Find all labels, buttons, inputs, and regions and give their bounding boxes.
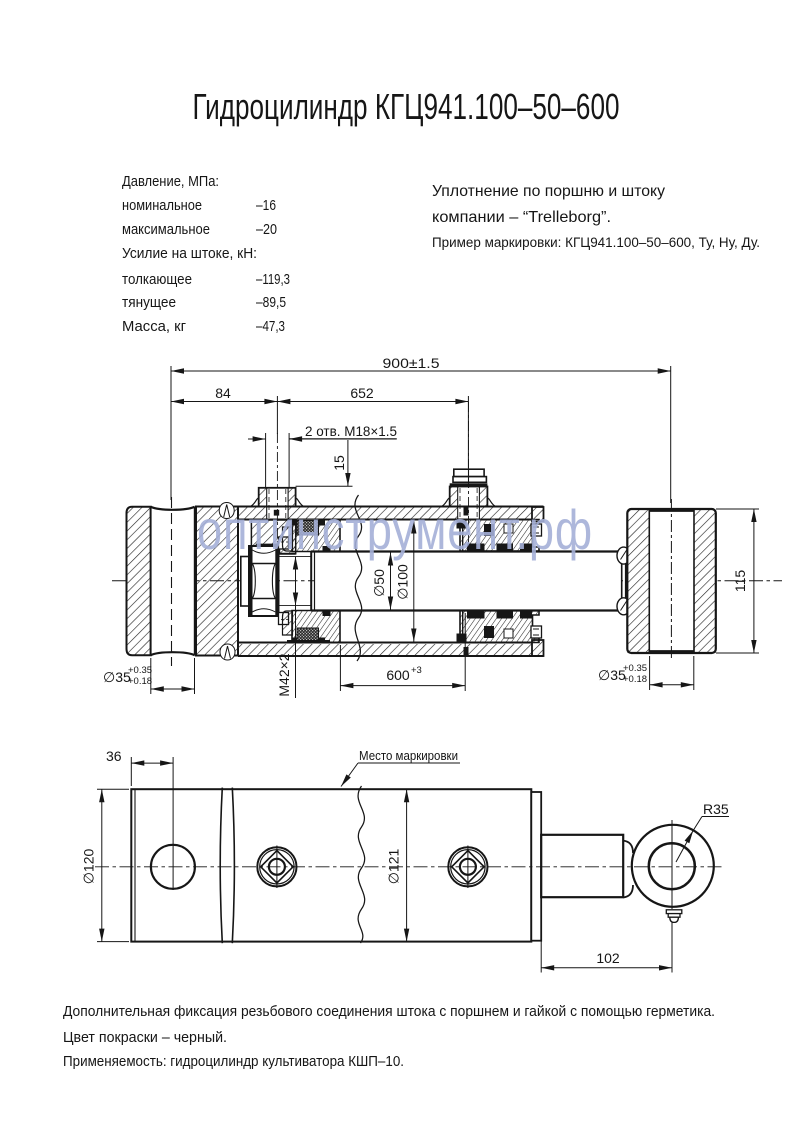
svg-text:+0.18: +0.18 [128, 676, 152, 687]
svg-text:Дополнительная фиксация резьбо: Дополнительная фиксация резьбового соеди… [63, 1004, 715, 1020]
svg-text:Давление, МПа:: Давление, МПа: [122, 173, 219, 190]
svg-text:115: 115 [732, 570, 748, 593]
svg-text:тянущее: тянущее [122, 294, 176, 311]
svg-text:–20: –20 [256, 221, 277, 238]
svg-text:–47,3: –47,3 [256, 318, 285, 335]
svg-text:∅100: ∅100 [395, 564, 411, 600]
svg-text:+0.35: +0.35 [128, 665, 152, 676]
svg-text:Цвет покраски – черный.: Цвет покраски – черный. [63, 1030, 227, 1046]
svg-text:максимальное: максимальное [122, 221, 210, 238]
svg-text:–119,3: –119,3 [256, 271, 290, 288]
svg-text:∅35: ∅35 [103, 669, 131, 685]
svg-text:+3: +3 [411, 665, 422, 676]
svg-text:∅35: ∅35 [598, 667, 626, 683]
svg-text:компании – “Trelleborg”.: компании – “Trelleborg”. [432, 209, 611, 226]
svg-text:Пример маркировки: КГЦ941.100–: Пример маркировки: КГЦ941.100–50–600, Ту… [432, 235, 760, 250]
svg-text:∅121: ∅121 [386, 849, 402, 885]
svg-text:Масса, кг: Масса, кг [122, 318, 187, 335]
svg-text:600: 600 [386, 667, 410, 683]
svg-text:Место маркировки: Место маркировки [359, 749, 458, 763]
svg-text:Гидроцилиндр КГЦ941.100–50–600: Гидроцилиндр КГЦ941.100–50–600 [193, 86, 620, 127]
svg-text:36: 36 [106, 748, 122, 764]
svg-text:+0.35: +0.35 [623, 663, 647, 674]
svg-text:15: 15 [331, 455, 347, 471]
svg-text:102: 102 [596, 950, 620, 966]
svg-text:М42×2: М42×2 [276, 653, 292, 696]
svg-text:2 отв. М18×1.5: 2 отв. М18×1.5 [305, 423, 397, 439]
svg-text:оптинструмент.рф: оптинструмент.рф [197, 498, 593, 561]
svg-text:652: 652 [350, 385, 374, 401]
svg-text:900±1.5: 900±1.5 [383, 355, 440, 371]
svg-text:R35: R35 [703, 801, 729, 817]
svg-text:номинальное: номинальное [122, 197, 202, 214]
svg-text:–89,5: –89,5 [256, 294, 286, 311]
svg-text:∅50: ∅50 [371, 569, 387, 597]
svg-text:84: 84 [215, 385, 231, 401]
svg-text:+0.18: +0.18 [623, 674, 647, 685]
svg-text:–16: –16 [256, 197, 276, 214]
svg-text:Уплотнение по поршню и штоку: Уплотнение по поршню и штоку [432, 183, 665, 200]
svg-text:Усилие на штоке, кН:: Усилие на штоке, кН: [122, 245, 257, 262]
svg-text:Применяемость: гидроцилиндр ку: Применяемость: гидроцилиндр культиватора… [63, 1054, 404, 1070]
svg-text:толкающее: толкающее [122, 271, 192, 288]
svg-text:∅120: ∅120 [81, 849, 97, 885]
